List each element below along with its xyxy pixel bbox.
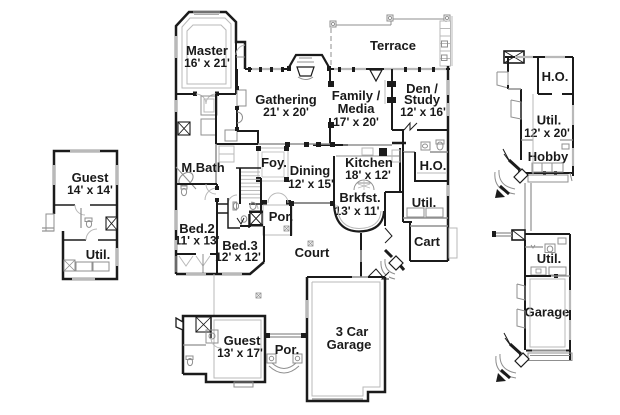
svg-text:H.O.: H.O. xyxy=(420,158,447,173)
svg-text:Util.: Util. xyxy=(86,247,111,262)
svg-text:14' x 14': 14' x 14' xyxy=(67,183,113,197)
svg-text:Garage: Garage xyxy=(525,305,570,320)
svg-text:21' x 20': 21' x 20' xyxy=(263,105,309,119)
svg-text:16' x 21': 16' x 21' xyxy=(184,56,230,70)
svg-text:Foy.: Foy. xyxy=(261,155,287,170)
svg-text:Brkfst.: Brkfst. xyxy=(339,190,380,205)
svg-text:Hobby: Hobby xyxy=(528,149,569,164)
svg-text:Cart: Cart xyxy=(414,234,441,249)
svg-text:12' x 20': 12' x 20' xyxy=(524,126,570,140)
svg-text:Terrace: Terrace xyxy=(370,38,416,53)
svg-text:Util.: Util. xyxy=(537,251,562,266)
svg-text:Garage: Garage xyxy=(327,337,372,352)
svg-text:H.O.: H.O. xyxy=(542,69,569,84)
svg-text:M.Bath: M.Bath xyxy=(181,160,224,175)
svg-text:13' x 17': 13' x 17' xyxy=(217,346,263,360)
svg-text:17' x 20': 17' x 20' xyxy=(333,115,379,129)
svg-text:Dining: Dining xyxy=(290,163,330,178)
svg-text:Por.: Por. xyxy=(269,209,294,224)
svg-text:Court: Court xyxy=(295,245,330,260)
svg-text:11' x 13': 11' x 13' xyxy=(174,234,219,248)
svg-text:Media: Media xyxy=(338,101,376,116)
svg-text:12' x 16': 12' x 16' xyxy=(400,105,446,119)
svg-text:Por.: Por. xyxy=(275,342,300,357)
svg-text:12' x 12': 12' x 12' xyxy=(215,250,261,264)
svg-text:13' x 11': 13' x 11' xyxy=(334,204,379,218)
svg-text:12' x 15': 12' x 15' xyxy=(288,177,334,191)
svg-text:18' x 12': 18' x 12' xyxy=(345,168,391,182)
